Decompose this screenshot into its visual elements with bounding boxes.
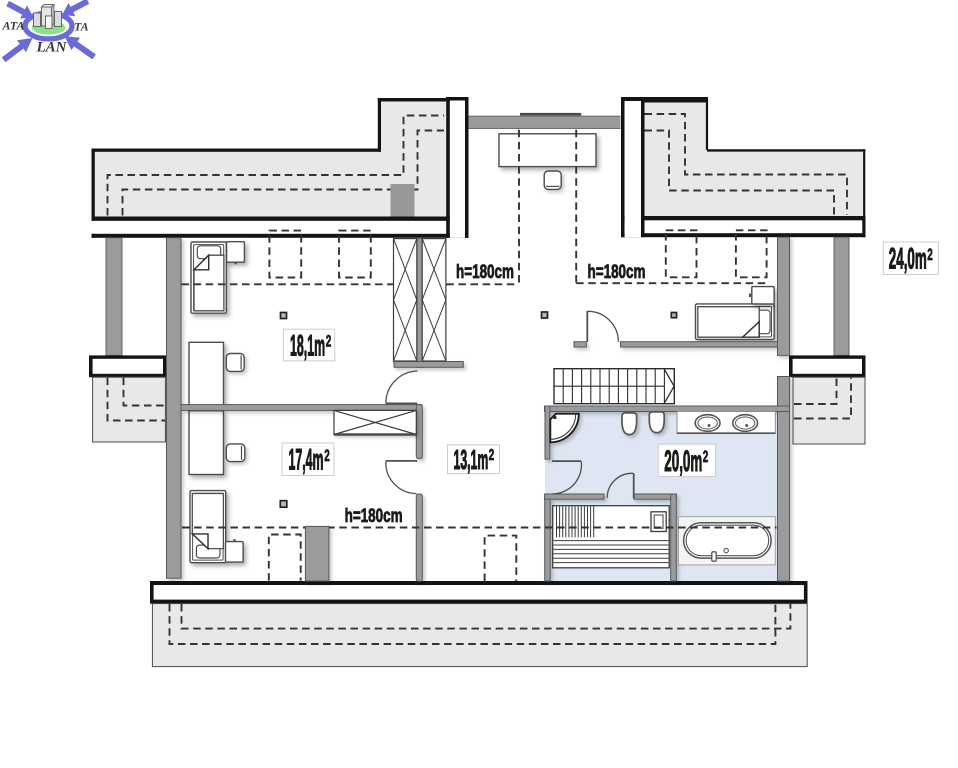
svg-text:2: 2: [326, 332, 332, 351]
svg-text:2: 2: [489, 447, 495, 464]
svg-text:LAN: LAN: [36, 40, 68, 56]
svg-text:2: 2: [703, 447, 709, 466]
svg-text:18,1m: 18,1m: [290, 329, 325, 362]
svg-text:h=180cm: h=180cm: [456, 261, 514, 283]
svg-text:h=180cm: h=180cm: [345, 505, 403, 527]
svg-text:TA: TA: [74, 20, 89, 34]
svg-text:h=180cm: h=180cm: [588, 261, 646, 283]
svg-text:2: 2: [927, 245, 933, 264]
svg-text:20,0m: 20,0m: [664, 445, 702, 478]
svg-text:2: 2: [324, 446, 330, 465]
svg-text:24,0m: 24,0m: [889, 243, 927, 276]
svg-text:ATA: ATA: [2, 19, 25, 33]
svg-text:13,1m: 13,1m: [454, 444, 489, 475]
svg-text:17,4m: 17,4m: [289, 444, 324, 477]
